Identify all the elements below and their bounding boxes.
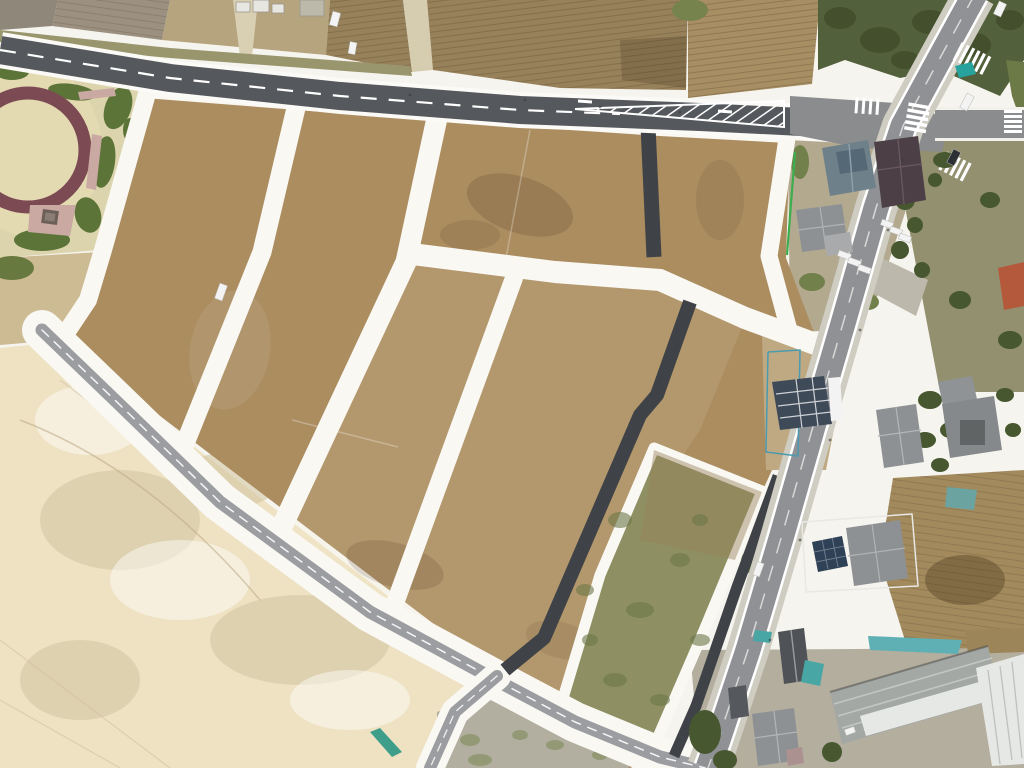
field-dark-patch xyxy=(925,555,1005,605)
house-gray-hip xyxy=(876,404,924,468)
house-maroon-roof xyxy=(874,136,926,208)
field-plowed-1 xyxy=(0,0,58,30)
dark-road-vertical xyxy=(648,126,654,257)
house-blue-gray-hip xyxy=(822,140,876,196)
aerial-orthophoto xyxy=(0,0,1024,768)
house-solar-section xyxy=(836,148,868,174)
teal-shed-far xyxy=(945,487,977,510)
park-pavilion-roof xyxy=(44,212,55,221)
pink-garage xyxy=(786,747,804,766)
field-furrowed-right-texture xyxy=(688,0,820,98)
field-dark-section xyxy=(620,36,686,88)
teal-shed xyxy=(801,660,824,686)
dark-outbuilding xyxy=(728,685,749,719)
solar-array xyxy=(812,536,848,572)
grass-corner xyxy=(672,0,708,21)
aerial-photo-canvas xyxy=(0,0,1024,768)
